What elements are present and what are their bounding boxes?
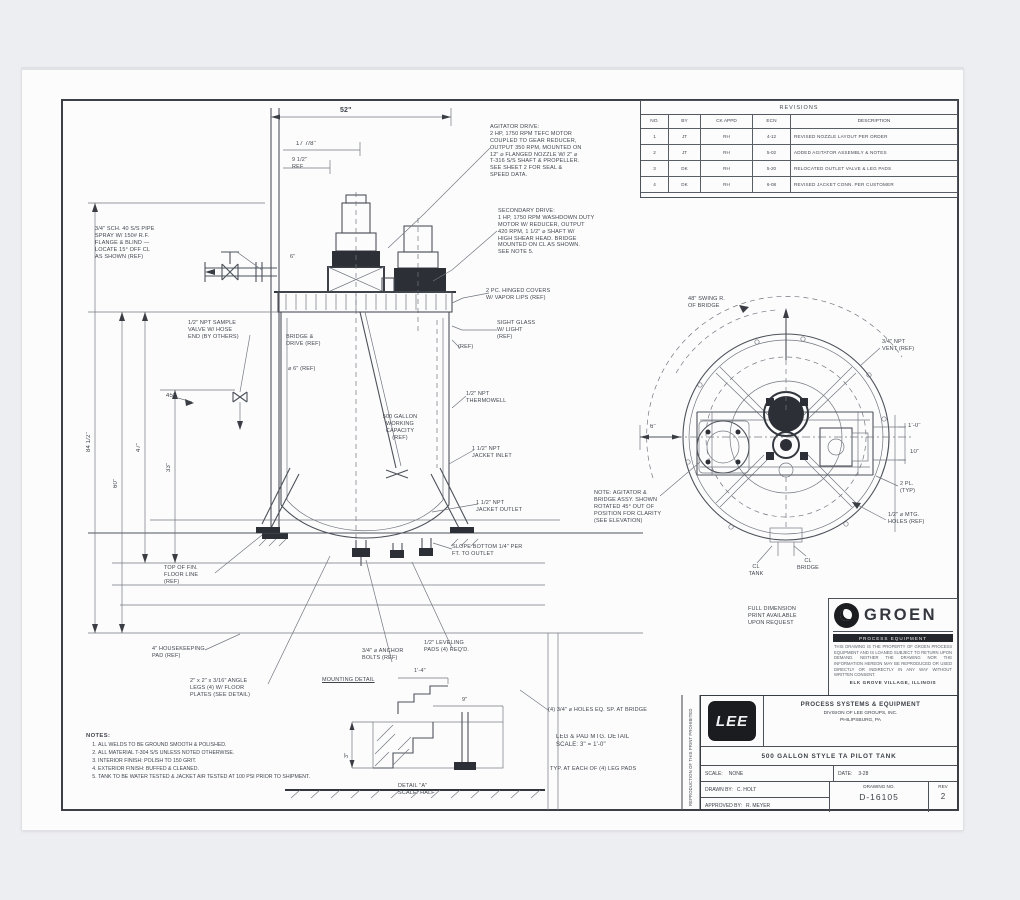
- rev-cell: 1: [641, 129, 669, 145]
- label-dim-h4: 33": [166, 463, 174, 472]
- label-capacity: 500 GALLON WORKING CAPACITY (REF): [374, 414, 426, 442]
- label-plan-dim-r2: 10": [910, 449, 919, 457]
- rev-cell: 5-20: [753, 161, 791, 177]
- label-detail-dim2: 9": [462, 697, 467, 704]
- company-city: PHILIPSBURG, PA: [764, 718, 957, 723]
- label-dim-h2: 60": [113, 479, 121, 488]
- approved-by-label: APPROVED BY:: [705, 803, 742, 809]
- label-dim-pipe: 6": [290, 254, 295, 261]
- notes-block: NOTES: ALL WELDS TO BE GROUND SMOOTH & P…: [86, 733, 348, 781]
- rev-cell: REVISED NOZZLE LAYOUT PER ORDER: [791, 129, 957, 145]
- rev-value: 2: [929, 792, 957, 801]
- brand-block: GROEN PROCESS EQUIPMENT THIS DRAWING IS …: [828, 598, 958, 698]
- label-vertical-strip: REPRODUCTION OF THIS PRINT PROHIBITED: [688, 708, 693, 806]
- brand-name: GROEN: [864, 606, 937, 625]
- label-plan-bolt-holes: 1/2" ⌀ MTG. HOLES (REF): [888, 512, 925, 526]
- label-dim-45: 45°: [166, 393, 176, 401]
- note-item: INTERIOR FINISH: POLISH TO 150 GRIT.: [98, 757, 348, 765]
- label-bridge: BRIDGE & DRIVE (REF): [286, 334, 321, 348]
- label-swing-radius: 48" SWING R. OF BRIDGE: [688, 296, 725, 310]
- approved-by-value: R. MEYER: [746, 803, 770, 809]
- label-leveling-pads: 1/2" LEVELING PADS (4) REQ'D.: [424, 640, 469, 654]
- label-plan-2pl: 2 PL. (TYP): [900, 481, 915, 495]
- brand-notice: THIS DRAWING IS THE PROPERTY OF GROEN PR…: [834, 644, 952, 678]
- date-value: 3-28: [858, 771, 868, 777]
- viewer-background: 52" 17 7/8" 9 1/2" REF 6" 3/4" SCH. 40 S…: [0, 0, 1020, 900]
- revision-table: REVISIONS NO. BY CK APPD ECN DESCRIPTION…: [640, 100, 958, 198]
- label-dim-h1: 84 1/2": [86, 432, 94, 452]
- label-anchor-bolts: 3/4" ⌀ ANCHOR BOLTS (REF): [362, 648, 403, 662]
- rev-cell: JT: [669, 145, 701, 161]
- note-item: ALL MATERIAL T-304 S/S UNLESS NOTED OTHE…: [98, 749, 348, 757]
- rev-cell: DK: [669, 177, 701, 193]
- label-note-agitator-2: SECONDARY DRIVE: 1 HP, 1750 RPM WASHDOWN…: [498, 208, 646, 256]
- label-mounting-detail: MOUNTING DETAIL: [322, 677, 375, 684]
- detail-view: [285, 633, 700, 810]
- label-detail-title: LEG & PAD MTG. DETAIL SCALE: 3" = 1'-0": [556, 734, 666, 749]
- rev-cell: RH: [701, 145, 753, 161]
- label-vortex: ⌀ 6" (REF): [288, 366, 316, 373]
- rev-header-desc: DESCRIPTION: [791, 115, 957, 129]
- drawn-by-value: C. HOLT: [737, 787, 756, 793]
- brand-tagline: PROCESS EQUIPMENT: [833, 634, 953, 642]
- notes-heading: NOTES:: [86, 733, 348, 739]
- date-label: DATE:: [838, 771, 852, 777]
- rev-cell: 4-12: [753, 129, 791, 145]
- rev-header-ck: CK APPD: [701, 115, 753, 129]
- label-note-valve: 1/2" NPT SAMPLE VALVE W/ HOSE END (BY OT…: [188, 320, 260, 341]
- rev-cell: RH: [701, 177, 753, 193]
- label-jacket-outlet: 1 1/2" NPT JACKET OUTLET: [476, 500, 522, 514]
- note-item: EXTERIOR FINISH: BUFFED & CLEANED.: [98, 765, 348, 773]
- label-note-pipe: 3/4" SCH. 40 S/S PIPE SPRAY W/ 150# R.F.…: [95, 226, 235, 260]
- label-plan-note: NOTE: AGITATOR & BRIDGE ASSY. SHOWN ROTA…: [594, 490, 674, 524]
- plan-view: [640, 296, 914, 563]
- rev-header-ecn: ECN: [753, 115, 791, 129]
- brand-footer: ELK GROVE VILLAGE, ILLINOIS: [829, 680, 957, 685]
- drawn-by-label: DRAWN BY:: [705, 787, 733, 793]
- label-note-cover: 2 PC. HINGED COVERS W/ VAPOR LIPS (REF): [486, 288, 578, 302]
- label-sight-glass: SIGHT GLASS W/ LIGHT (REF): [497, 320, 535, 341]
- scale-value: NONE: [729, 771, 743, 777]
- label-thermowell: 1/2" NPT THERMOWELL: [466, 391, 506, 405]
- rev-cell: RH: [701, 161, 753, 177]
- rev-label: REV: [929, 784, 957, 789]
- label-dim-width: 52": [340, 107, 352, 116]
- label-dim-a: 17 7/8": [296, 141, 316, 149]
- elevation-view: [88, 108, 643, 710]
- rev-cell: 2: [641, 145, 669, 161]
- title-block: LEE PROCESS SYSTEMS & EQUIPMENT DIVISION…: [700, 695, 958, 810]
- drawing-number-label: DRAWING NO.: [830, 784, 928, 789]
- label-legs: 2" x 2" x 3/16" ANGLE LEGS (4) W/ FLOOR …: [190, 678, 300, 699]
- label-detail-dim3: 1'-4": [414, 668, 426, 675]
- label-detail-holes: (4) 3/4" ⌀ HOLES EQ. SP. AT BRIDGE: [548, 707, 678, 714]
- rev-cell: RELOCATED OUTLET VALVE & LEG PADS: [791, 161, 957, 177]
- label-full-print: FULL DIMENSION PRINT AVAILABLE UPON REQU…: [748, 606, 818, 627]
- rev-header-no: NO.: [641, 115, 669, 129]
- rev-cell: 4: [641, 177, 669, 193]
- company-division: DIVISION OF LEE GROUPS, INC.: [764, 711, 957, 716]
- label-dim-b: 9 1/2" REF: [292, 157, 307, 171]
- groen-logo-icon: [834, 603, 859, 628]
- company-name: PROCESS SYSTEMS & EQUIPMENT: [764, 701, 957, 708]
- company-logo: LEE: [708, 701, 756, 741]
- label-ref: (REF): [458, 344, 473, 351]
- label-cl-tank: CL TANK: [744, 564, 768, 578]
- scale-label: SCALE:: [705, 771, 723, 777]
- rev-cell: ADDED AGITATOR ASSEMBLY & NOTES: [791, 145, 957, 161]
- label-cl-bridge: CL BRIDGE: [794, 558, 822, 572]
- label-plan-dim-left: 6": [650, 424, 656, 432]
- rev-cell: RH: [701, 129, 753, 145]
- note-item: ALL WELDS TO BE GROUND SMOOTH & POLISHED…: [98, 741, 348, 749]
- rev-cell: 6-08: [753, 177, 791, 193]
- label-dim-h3: 47": [136, 443, 144, 452]
- rev-cell: 5-02: [753, 145, 791, 161]
- label-jacket-inlet: 1 1/2" NPT JACKET INLET: [472, 446, 512, 460]
- revision-table-title: REVISIONS: [641, 101, 957, 115]
- rev-header-by: BY: [669, 115, 701, 129]
- rev-cell: REVISED JACKET CONN. PER CUSTOMER: [791, 177, 957, 193]
- label-note-agitator-1: AGITATOR DRIVE: 2 HP, 1750 RPM TEFC MOTO…: [490, 124, 642, 179]
- rev-cell: JT: [669, 129, 701, 145]
- note-item: TANK TO BE WATER TESTED & JACKET AIR TES…: [98, 773, 348, 781]
- label-floor-line: TOP OF FIN. FLOOR LINE (REF): [164, 565, 198, 586]
- label-slope: SLOPE BOTTOM 1/4" PER FT. TO OUTLET: [452, 544, 562, 558]
- label-detail-a: DETAIL "A" SCALE: HALF: [398, 783, 435, 797]
- label-detail-typ: TYP. AT EACH OF (4) LEG PADS: [550, 766, 670, 773]
- label-plan-vent: 3/4" NPT VENT (REF): [882, 339, 914, 353]
- rev-cell: 3: [641, 161, 669, 177]
- label-plan-dim-r1: 1'-0": [908, 423, 921, 431]
- drawing-title: 500 GALLON STYLE TA PILOT TANK: [701, 747, 957, 766]
- rev-cell: DK: [669, 161, 701, 177]
- label-pad: 4" HOUSEKEEPING PAD (REF): [152, 646, 205, 660]
- drawing-number-value: D-16105: [830, 792, 928, 802]
